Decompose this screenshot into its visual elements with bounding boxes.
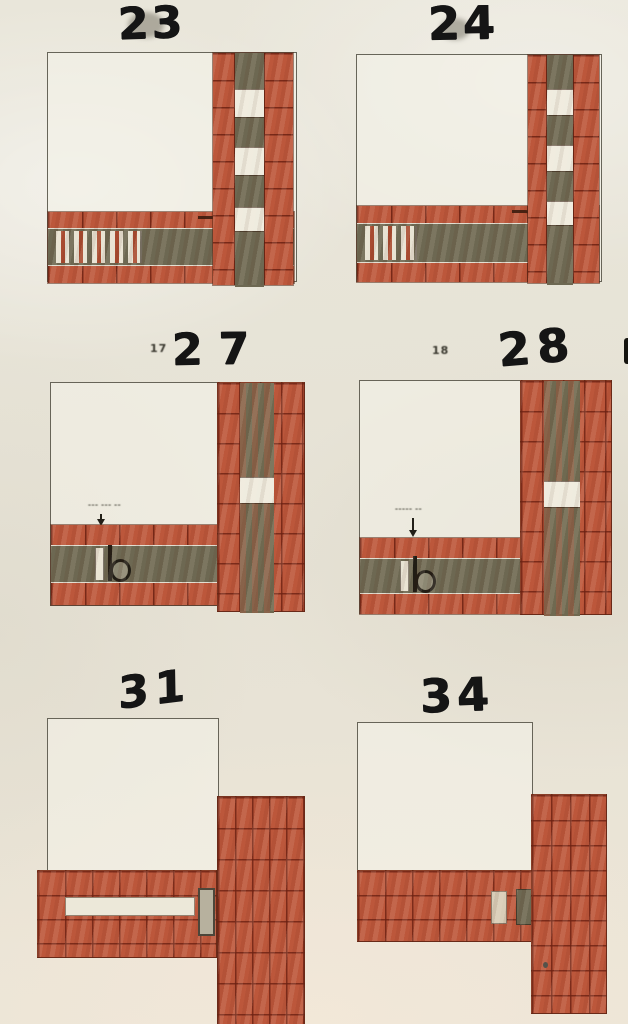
cavity-column: [240, 383, 274, 611]
brick-column: [573, 55, 599, 283]
down-arrow-icon: [100, 514, 102, 523]
figure-24: [352, 46, 608, 286]
wall-right: [527, 54, 600, 284]
flue-caption: ––– ––– ––: [88, 502, 121, 509]
brick-column: [528, 55, 546, 283]
wall-right: [212, 52, 294, 286]
figure-24-number: 24: [428, 0, 499, 47]
damper-block: [198, 888, 215, 936]
figure-28: ––––– ––: [355, 330, 613, 615]
flue-mark: [107, 548, 129, 582]
room-outline: [47, 718, 219, 872]
wall-right: [531, 794, 607, 1014]
white-stripe: [95, 548, 104, 580]
flue-mark: [412, 559, 434, 593]
wall-right: [217, 796, 305, 1024]
white-stripe: [400, 561, 409, 591]
cavity-column: [546, 55, 573, 283]
figure-31: [35, 665, 307, 965]
hatched-block: [365, 226, 417, 260]
hatched-block: [56, 231, 142, 263]
paper-speck: [543, 962, 548, 968]
wall-right: [217, 382, 305, 612]
figure-34: [350, 668, 612, 958]
flue-caption: ––––– ––: [395, 506, 422, 513]
light-brick: [491, 891, 507, 924]
scanned-page: 23 24: [0, 0, 628, 1024]
wall-right: [520, 380, 612, 615]
cavity-column: [234, 53, 263, 285]
figure-23: [42, 46, 300, 286]
cavity-column: [544, 381, 580, 614]
scan-edge-mark: [624, 338, 628, 364]
figure-27: ––– ––– ––: [45, 330, 307, 612]
vent-slot: [65, 897, 195, 916]
brick-column: [213, 53, 234, 285]
brick-column: [264, 53, 293, 285]
figure-23-number: 23: [117, 1, 186, 47]
room-outline: [357, 722, 533, 872]
down-arrow-icon: [412, 518, 414, 534]
